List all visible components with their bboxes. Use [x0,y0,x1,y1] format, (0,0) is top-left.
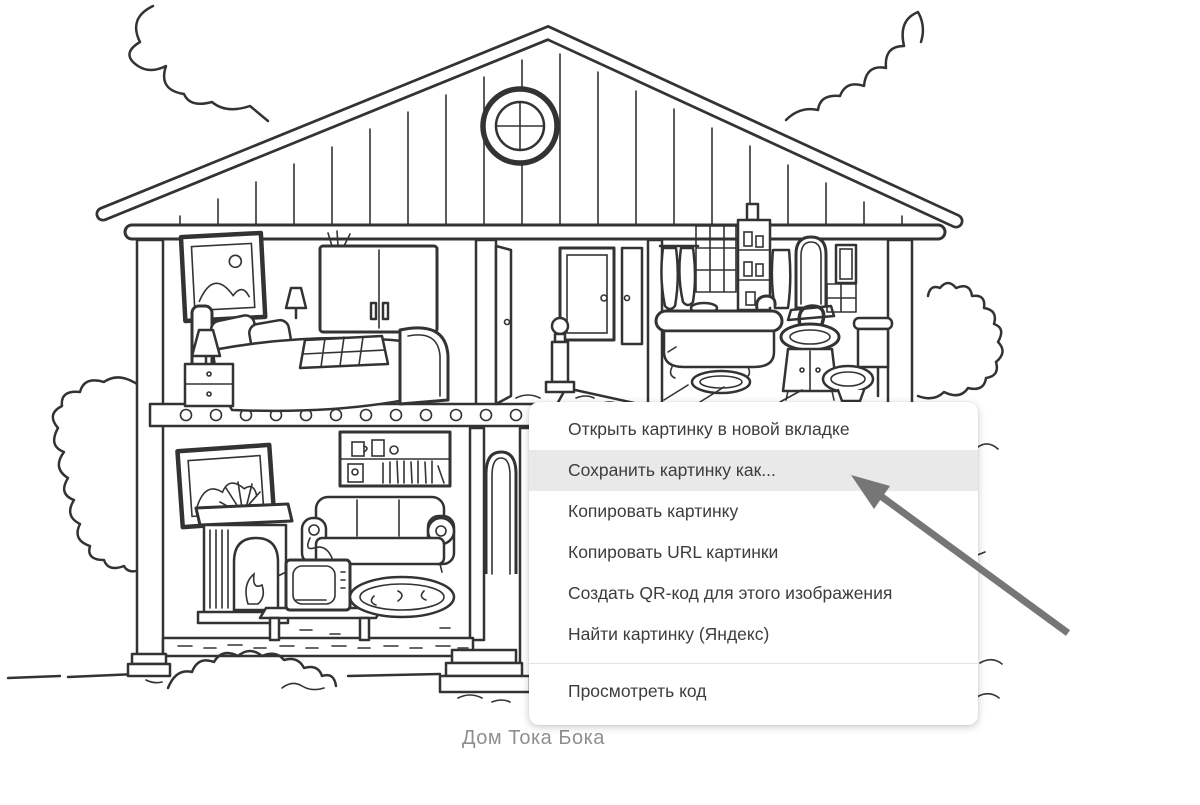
menu-item-open-image-new-tab[interactable]: Открыть картинку в новой вкладке [529,409,978,450]
menu-item-save-image-as[interactable]: Сохранить картинку как... [529,450,978,491]
living-room [177,432,516,640]
fireplace-icon [196,504,292,623]
menu-item-inspect-code[interactable]: Просмотреть код [529,671,978,712]
menu-item-search-image-yandex[interactable]: Найти картинку (Яндекс) [529,614,978,655]
context-menu: Открыть картинку в новой вкладке Сохрани… [529,402,978,725]
hallway [496,246,648,428]
menu-separator [529,663,978,664]
round-window-icon [483,89,557,163]
wardrobe-icon [320,231,437,332]
bookshelf-icon [340,432,450,486]
image-caption: Дом Тока Бока [462,727,605,750]
bedroom [181,231,448,411]
roof [103,33,956,232]
page: Дом Тока Бока Открыть картинку в новой в… [0,0,1200,805]
menu-item-copy-image-url[interactable]: Копировать URL картинки [529,532,978,573]
bathroom-shelf-icon [738,204,770,310]
menu-item-copy-image[interactable]: Копировать картинку [529,491,978,532]
rug-icon [350,577,454,617]
menu-item-create-qr-code[interactable]: Создать QR-код для этого изображения [529,573,978,614]
arch-doorway-icon [486,452,516,574]
